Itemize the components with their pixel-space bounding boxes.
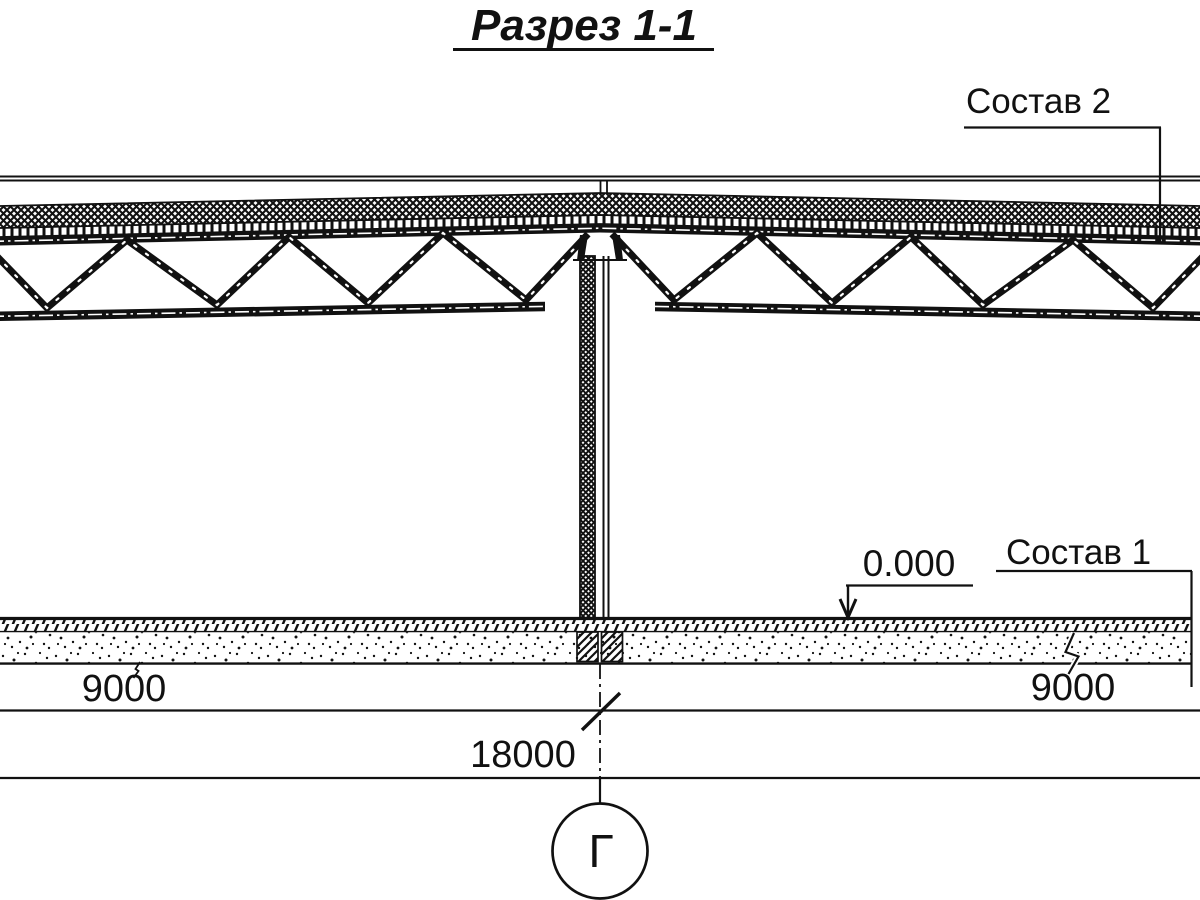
section-drawing: Разрез 1-1 bbox=[0, 0, 1200, 900]
elevation-value: 0.000 bbox=[863, 543, 956, 584]
floor-composition-label: Состав 1 bbox=[1006, 533, 1151, 572]
drawing-sheet: Разрез 1-1 bbox=[0, 0, 1200, 900]
roof-composition-label: Состав 2 bbox=[966, 82, 1111, 121]
floor-slab bbox=[0, 619, 1193, 679]
dim-left-bay: 9000 bbox=[82, 668, 167, 710]
center-column bbox=[577, 256, 623, 662]
grid-axis-letter: Г bbox=[589, 825, 614, 877]
floor-screed-hatch-band bbox=[0, 620, 1193, 631]
floor-concrete-stipple-band bbox=[0, 632, 1193, 662]
elevation-marker: 0.000 bbox=[840, 543, 973, 618]
truss-web-diagonals-right bbox=[612, 233, 1200, 308]
apex-end-post-right bbox=[612, 235, 623, 260]
column-hatched-flange bbox=[580, 256, 595, 619]
dim-total-span: 18000 bbox=[470, 734, 576, 776]
drawing-title-block: Разрез 1-1 bbox=[453, 1, 714, 50]
roof-trusses bbox=[0, 233, 1200, 321]
roof-assembly bbox=[0, 177, 1200, 246]
page-title: Разрез 1-1 bbox=[471, 1, 697, 50]
truss-web-diagonals-left bbox=[0, 233, 588, 308]
dim-right-bay: 9000 bbox=[1031, 667, 1116, 709]
dimension-system: 9000 9000 18000 Г bbox=[0, 664, 1200, 899]
